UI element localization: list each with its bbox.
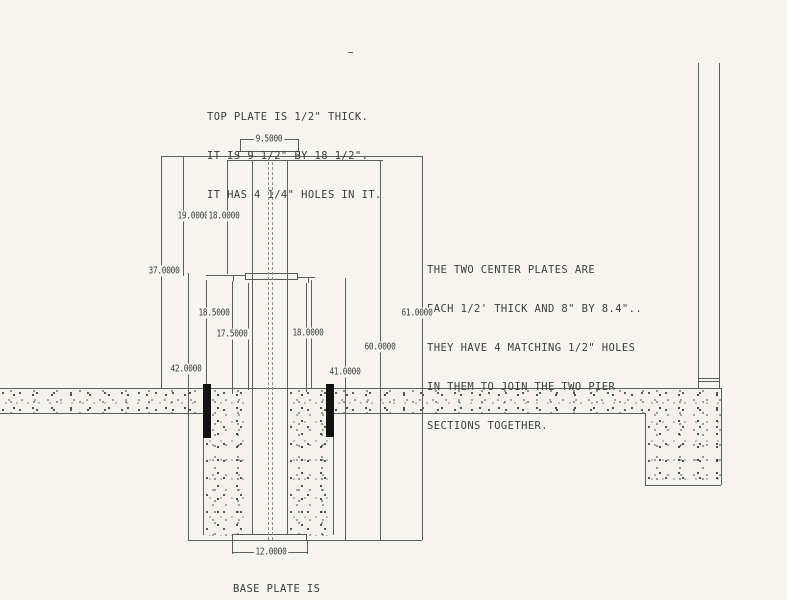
top-plate-note-line2: IT IS 9 1/2" BY 18 1/2". <box>207 150 382 163</box>
dim-upper-total-height: 37.0000 <box>147 266 181 277</box>
wall-footing-bottom-line <box>645 485 721 486</box>
wall-footing-left-edge <box>645 413 646 485</box>
dim-overall-inner-height: 60.0000 <box>363 342 397 353</box>
anchor-bolt-right <box>326 384 334 437</box>
wall-right-line <box>719 63 720 388</box>
top-plate-note: TOP PLATE IS 1/2" THICK. IT IS 9 1/2" BY… <box>207 85 382 228</box>
slab-bottom-line-left <box>0 413 203 414</box>
dim-ext-12-left <box>232 540 233 554</box>
top-plate-note-line3: IT HAS 4 1/4" HOLES IN IT. <box>207 189 382 202</box>
dim-mid-center-height: 17.5000 <box>215 329 249 340</box>
dim-lower-left-height: 42.0000 <box>169 364 203 375</box>
center-plates-note-line5: SECTIONS TOGETHER. <box>427 420 642 433</box>
base-plate-note-line1: BASE PLATE IS <box>233 583 327 596</box>
dim-top-plate-width: 9.5000 <box>254 134 284 145</box>
pier-footing-concrete-left <box>204 389 251 536</box>
base-plate-note: BASE PLATE IS 1/2" THICK AND 12" SQUARE <box>233 557 327 600</box>
ground-slab-left <box>0 389 203 413</box>
top-plate-note-line1: TOP PLATE IS 1/2" THICK. <box>207 111 382 124</box>
dim-overall-outer-height: 61.0000 <box>400 308 434 319</box>
plate-level-line-right <box>298 277 315 278</box>
dim-lower-right-height: 41.0000 <box>328 367 362 378</box>
center-plates-note-line1: THE TWO CENTER PLATES ARE <box>427 264 642 277</box>
plate-dim-tick-right <box>308 277 309 283</box>
dim-ext-42 <box>188 273 189 540</box>
pier-elevation-drawing: TOP PLATE IS 1/2" THICK. IT IS 9 1/2" BY… <box>0 0 787 600</box>
wall-footing-concrete <box>646 389 721 485</box>
plate-level-line-left <box>206 275 245 276</box>
dim-upper-outer-height: 19.0000 <box>176 211 210 222</box>
lower-pier-left-edge <box>206 280 207 388</box>
dim-mid-left-height: 18.5000 <box>197 308 231 319</box>
anchor-bolt-left <box>203 384 211 438</box>
center-plates-note-line4: IN THEM TO JOIN THE TWO PIER <box>427 381 642 394</box>
wall-sill-line-upper <box>698 378 719 379</box>
dim-ext-61 <box>422 156 423 540</box>
center-plates-note: THE TWO CENTER PLATES ARE EACH 1/2' THIC… <box>427 238 642 459</box>
plate-dim-tick-left <box>233 275 234 281</box>
drawing-bottom-line <box>188 540 422 541</box>
center-plates-note-line2: EACH 1/2' THICK AND 8" BY 8.4".. <box>427 303 642 316</box>
dim-mid-right-height: 18.0000 <box>291 328 325 339</box>
wall-footing-right-edge <box>721 388 722 485</box>
dim-ext-12-right <box>307 540 308 554</box>
wall-left-line <box>698 63 699 388</box>
dim-ext-41 <box>345 278 346 540</box>
dim-upper-inner-height: 18.0000 <box>207 211 241 222</box>
center-plates-note-line3: THEY HAVE 4 MATCHING 1/2" HOLES <box>427 342 642 355</box>
wall-sill-line-lower <box>698 381 719 382</box>
dim-base-plate-width: 12.0000 <box>254 547 288 558</box>
stray-mark <box>348 52 353 53</box>
